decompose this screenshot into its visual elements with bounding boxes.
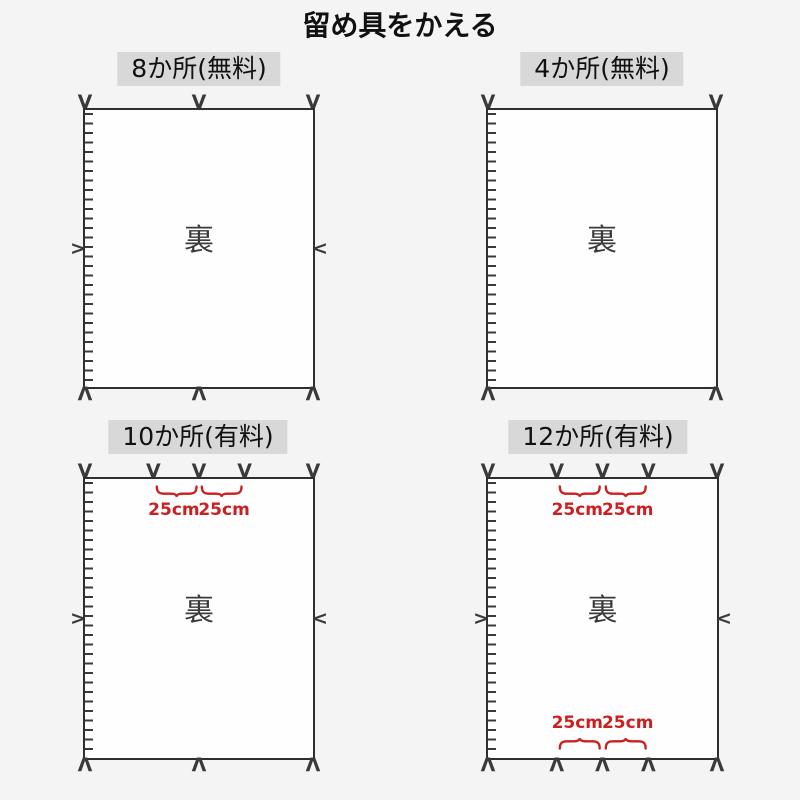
back-side-label: 裏	[184, 215, 214, 259]
mark-up-icon: Λ	[595, 756, 610, 775]
page-title: 留め具をかえる	[302, 4, 497, 44]
measure-brace-icon	[200, 484, 243, 498]
mark-up-icon: Λ	[192, 756, 207, 775]
mark-down-icon: V	[710, 462, 725, 481]
measure-brace-icon	[604, 737, 648, 751]
mark-up-icon: Λ	[481, 385, 496, 404]
mark-down-icon: V	[481, 93, 496, 112]
mark-down-icon: V	[78, 462, 93, 481]
stitched-edge	[85, 113, 93, 384]
mark-up-icon: Λ	[549, 756, 564, 775]
panel-10-sheet: 裏 V V V V V 25cm 25cm Λ Λ Λ > <	[83, 477, 315, 760]
mark-down-icon: V	[306, 93, 321, 112]
mark-left-icon: <	[312, 609, 328, 628]
mark-up-icon: Λ	[306, 756, 321, 775]
mark-down-icon: V	[306, 462, 321, 481]
stitched-edge	[488, 113, 496, 384]
measure-label: 25cm	[552, 715, 603, 732]
mark-down-icon: V	[237, 462, 252, 481]
panel-4-label: 4か所(無料)	[520, 52, 683, 86]
mark-left-icon: <	[312, 239, 328, 258]
panel-12-label: 12か所(有料)	[508, 420, 687, 454]
measure-brace-icon	[558, 484, 602, 498]
back-side-label: 裏	[184, 585, 214, 629]
mark-down-icon: V	[549, 462, 564, 481]
mark-right-icon: >	[473, 609, 489, 628]
panel-8-label: 8か所(無料)	[117, 52, 280, 86]
mark-up-icon: Λ	[78, 756, 93, 775]
mark-down-icon: V	[146, 462, 161, 481]
mark-up-icon: Λ	[709, 385, 724, 404]
back-side-label: 裏	[587, 215, 617, 259]
measure-label: 25cm	[148, 502, 199, 519]
mark-up-icon: Λ	[78, 385, 93, 404]
measure-label: 25cm	[198, 502, 249, 519]
mark-up-icon: Λ	[192, 385, 207, 404]
mark-down-icon: V	[481, 462, 496, 481]
mark-up-icon: Λ	[481, 756, 496, 775]
mark-up-icon: Λ	[710, 756, 725, 775]
panel-4-sheet: 裏 V V Λ Λ	[486, 108, 718, 389]
measure-label: 25cm	[602, 715, 653, 732]
measure-brace-icon	[155, 484, 198, 498]
back-side-label: 裏	[588, 585, 618, 629]
mark-down-icon: V	[78, 93, 93, 112]
mark-right-icon: >	[70, 239, 86, 258]
measure-brace-icon	[604, 484, 648, 498]
stitched-edge	[488, 482, 496, 755]
mark-down-icon: V	[641, 462, 656, 481]
mark-left-icon: <	[716, 609, 732, 628]
panel-12-sheet: 裏 V V V V V 25cm 25cm 25cm 25cm	[486, 477, 719, 760]
stitched-edge	[85, 482, 93, 755]
diagram-canvas: 留め具をかえる 8か所(無料) 裏 V V V Λ Λ Λ > < 4か所(無料…	[0, 0, 800, 800]
mark-down-icon: V	[192, 462, 207, 481]
measure-label: 25cm	[552, 502, 603, 519]
mark-down-icon: V	[595, 462, 610, 481]
panel-8-sheet: 裏 V V V Λ Λ Λ > <	[83, 108, 315, 389]
mark-up-icon: Λ	[306, 385, 321, 404]
mark-right-icon: >	[70, 609, 86, 628]
mark-down-icon: V	[709, 93, 724, 112]
measure-label: 25cm	[602, 502, 653, 519]
mark-up-icon: Λ	[641, 756, 656, 775]
measure-brace-icon	[558, 737, 602, 751]
panel-10-label: 10か所(有料)	[108, 420, 287, 454]
mark-down-icon: V	[192, 93, 207, 112]
